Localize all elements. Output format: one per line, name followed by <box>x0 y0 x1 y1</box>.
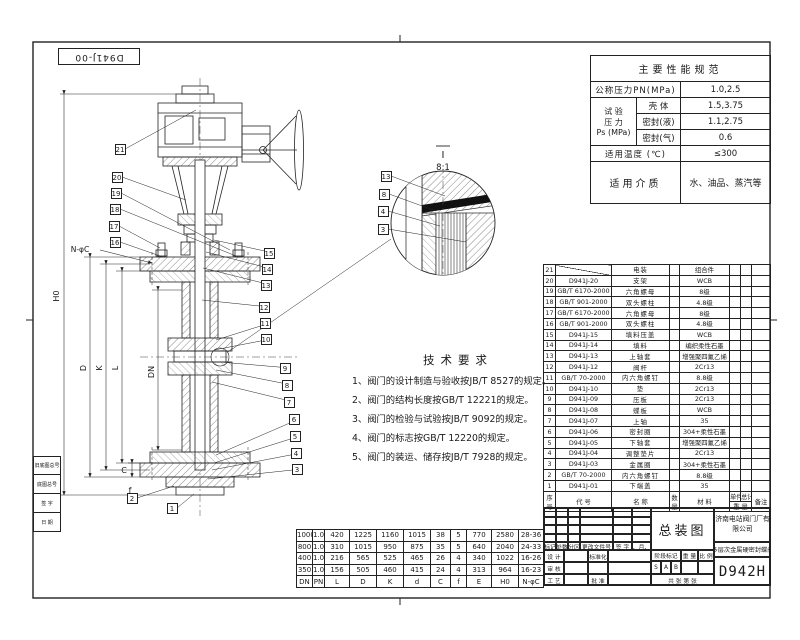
part-remark <box>752 351 771 362</box>
part-no: 16 <box>544 318 556 329</box>
parts-list-table: 21电装组合件20D941J-20支架WCB19GB/T 6170-2000六角… <box>543 264 771 492</box>
part-remark <box>752 448 771 459</box>
spec-title: 主要性能规范 <box>591 56 771 82</box>
parts-list-row: 18GB/T 901-2000双头螺柱4.8级 <box>544 297 771 308</box>
part-unit-weight <box>730 426 741 437</box>
part-name: 蝶板 <box>612 405 670 416</box>
dim-value: 2580 <box>492 530 519 542</box>
part-balloon: 16 <box>110 237 121 248</box>
dim-table-header-row: DNPNLDKdCfEH0N-φC <box>297 576 544 588</box>
parts-list-row: 20D941J-20支架WCB <box>544 275 771 286</box>
part-name: 下轴套 <box>612 437 670 448</box>
test-row-seal-liquid-label: 密封(液) <box>637 114 681 130</box>
part-name: 压板 <box>612 394 670 405</box>
tb-sign: 签 字 <box>613 542 632 550</box>
part-unit-weight <box>730 416 741 427</box>
dim-value: 216 <box>325 553 350 565</box>
stage-mark-b: B <box>671 561 681 574</box>
part-code <box>556 265 612 276</box>
dim-value: 640 <box>467 541 492 553</box>
part-material: WCB <box>680 275 730 286</box>
part-no: 20 <box>544 275 556 286</box>
dim-table-row: 3501.015650546041524431396416-23 <box>297 564 544 576</box>
part-balloon: 2 <box>127 493 138 504</box>
dim-h0: H0 <box>52 290 61 301</box>
part-material: 35 <box>680 416 730 427</box>
part-material: 增强聚四氟乙烯 <box>680 437 730 448</box>
part-unit-weight <box>730 480 741 491</box>
part-material: WCB <box>680 329 730 340</box>
part-qty <box>670 329 680 340</box>
tb-weight: 重 量 <box>681 550 698 561</box>
part-balloon: 13 <box>261 280 272 291</box>
parts-list-row: 16GB/T 901-2000双头螺柱4.8级 <box>544 318 771 329</box>
part-total-weight <box>741 340 752 351</box>
dim-header: f <box>451 576 467 588</box>
dim-value: 964 <box>492 564 519 576</box>
part-material: 编织柔性石墨 <box>680 340 730 351</box>
part-remark <box>752 308 771 319</box>
dim-k: K <box>95 365 104 371</box>
part-qty <box>670 383 680 394</box>
part-no: 8 <box>544 405 556 416</box>
part-code: GB/T 6170-2000 <box>556 308 612 319</box>
part-no: 4 <box>544 448 556 459</box>
part-name: 上轴 <box>612 416 670 427</box>
parts-list-row: 5D941J-05下轴套增强聚四氟乙烯 <box>544 437 771 448</box>
part-name: 双头螺柱 <box>612 297 670 308</box>
part-qty <box>670 318 680 329</box>
dimension-labels: H0 D K L DN C f N-φC <box>52 245 156 495</box>
part-remark <box>752 459 771 470</box>
tech-requirement-item: 4、阀门的标志按GB/T 12220的规定。 <box>352 429 564 448</box>
parts-list-row: 6D941J-06密封圈304+柔性石墨 <box>544 426 771 437</box>
part-balloon: 3 <box>292 464 303 475</box>
part-unit-weight <box>730 405 741 416</box>
part-no: 21 <box>544 265 556 276</box>
part-qty <box>670 426 680 437</box>
tb-zone: 分区 <box>568 542 580 550</box>
part-material: 2Cr13 <box>680 362 730 373</box>
dim-value: 16-23 <box>519 564 544 576</box>
part-total-weight <box>741 372 752 383</box>
dim-dn: DN <box>147 366 156 378</box>
part-balloon: 5 <box>290 431 301 442</box>
part-total-weight <box>741 383 752 394</box>
part-balloon: 6 <box>289 414 300 425</box>
dim-value: 1022 <box>492 553 519 565</box>
part-no: 2 <box>544 470 556 481</box>
part-balloon: 3 <box>378 224 389 235</box>
tech-requirement-item: 3、阀门的检验与试验按JB/T 9092的规定。 <box>352 410 564 429</box>
technical-requirements-title: 技术要求 <box>352 352 564 368</box>
detail-scale: 8:1 <box>436 163 450 173</box>
part-balloon: 8 <box>282 380 293 391</box>
part-remark <box>752 416 771 427</box>
parts-list-row: 15D941J-15填料压盖WCB <box>544 329 771 340</box>
part-unit-weight <box>730 340 741 351</box>
part-name: 双头螺柱 <box>612 318 670 329</box>
part-qty <box>670 340 680 351</box>
part-name: 填料压盖 <box>612 329 670 340</box>
dim-header: E <box>467 576 492 588</box>
part-code: GB/T 901-2000 <box>556 318 612 329</box>
title-block: 标记 处数 分区 更改文件号 签 字 年、月、日 设 计 标准化 审 核 工 艺… <box>543 507 770 585</box>
part-code: D941J-09 <box>556 394 612 405</box>
margin-block: 旧底图总号底图总号签 字日 期 <box>33 456 61 532</box>
nominal-pressure-label: 公称压力PN(MPa) <box>591 82 681 98</box>
tech-requirement-item: 1、阀门的设计制造与验收按JB/T 8527的规定。 <box>352 372 564 391</box>
part-no: 9 <box>544 394 556 405</box>
tb-date: 年、月、日 <box>632 542 651 550</box>
part-balloon: 19 <box>111 188 122 199</box>
part-qty <box>670 308 680 319</box>
part-no: 15 <box>544 329 556 340</box>
part-qty <box>670 297 680 308</box>
part-remark <box>752 437 771 448</box>
part-name: 支架 <box>612 275 670 286</box>
part-code: D941J-03 <box>556 459 612 470</box>
part-no: 18 <box>544 297 556 308</box>
part-code: D941J-20 <box>556 275 612 286</box>
part-name: 内六角螺钉 <box>612 372 670 383</box>
dim-value: 1.0 <box>313 530 325 542</box>
dim-value: 1225 <box>350 530 377 542</box>
part-material: 4.8级 <box>680 318 730 329</box>
part-name: 垫 <box>612 383 670 394</box>
dim-value: 1015 <box>404 530 431 542</box>
part-unit-weight <box>730 394 741 405</box>
part-code: D941J-08 <box>556 405 612 416</box>
part-material: 8级 <box>680 286 730 297</box>
tb-approve: 批 准 <box>588 574 608 586</box>
tb-design: 设 计 <box>544 550 564 562</box>
dim-value: 400 <box>297 553 313 565</box>
part-balloon: 10 <box>261 334 272 345</box>
dim-d: D <box>79 365 88 371</box>
drawing-model-number: D942H <box>714 557 771 586</box>
part-balloon: 15 <box>264 248 275 259</box>
part-material: 2Cr13 <box>680 394 730 405</box>
part-code: D941J-13 <box>556 351 612 362</box>
dim-value: 156 <box>325 564 350 576</box>
dim-value: 800 <box>297 541 313 553</box>
part-material: 组合件 <box>680 265 730 276</box>
tb-sheets: 共 张 第 张 <box>651 574 714 586</box>
drawing-title: 总装图 <box>651 508 714 550</box>
part-remark <box>752 340 771 351</box>
part-balloon: 14 <box>262 264 273 275</box>
part-remark <box>752 480 771 491</box>
part-balloon: 13 <box>381 171 392 182</box>
dim-value: 5 <box>451 541 467 553</box>
margin-block-cell: 日 期 <box>33 513 61 532</box>
dim-value: 420 <box>325 530 350 542</box>
dim-value: 313 <box>467 564 492 576</box>
part-name: 填料 <box>612 340 670 351</box>
part-unit-weight <box>730 437 741 448</box>
parts-list-row: 11GB/T 70-2000内六角螺钉8.8级 <box>544 372 771 383</box>
part-total-weight <box>741 416 752 427</box>
dim-header: PN <box>313 576 325 588</box>
part-balloon: 8 <box>379 189 390 200</box>
dim-value: 1.0 <box>313 564 325 576</box>
dim-value: 415 <box>404 564 431 576</box>
part-balloon: 4 <box>378 206 389 217</box>
dim-header: C <box>431 576 451 588</box>
part-code: GB/T 901-2000 <box>556 297 612 308</box>
part-no: 7 <box>544 416 556 427</box>
part-remark <box>752 362 771 373</box>
tech-requirement-item: 2、阀门的结构长度按GB/T 12221的规定。 <box>352 391 564 410</box>
part-unit-weight <box>730 448 741 459</box>
dim-value: 350 <box>297 564 313 576</box>
part-code: D941J-04 <box>556 448 612 459</box>
part-qty <box>670 416 680 427</box>
part-code: D941J-15 <box>556 329 612 340</box>
part-unit-weight <box>730 329 741 340</box>
part-no: 17 <box>544 308 556 319</box>
part-qty <box>670 480 680 491</box>
part-qty <box>670 459 680 470</box>
part-qty <box>670 286 680 297</box>
part-balloon: 20 <box>112 172 123 183</box>
part-qty <box>670 437 680 448</box>
stage-mark-a: A <box>661 561 671 574</box>
part-name: 阀杆 <box>612 362 670 373</box>
parts-list-row: 14D941J-14填料编织柔性石墨 <box>544 340 771 351</box>
parts-list-row: 3D941J-03金属圈304+柔性石墨 <box>544 459 771 470</box>
dim-value: 2040 <box>492 541 519 553</box>
part-name: 上轴套 <box>612 351 670 362</box>
part-no: 13 <box>544 351 556 362</box>
part-material: 8级 <box>680 308 730 319</box>
drawing-sheet: H0 D K L DN C f N-φC Ⅰ 8:1 <box>0 0 800 640</box>
part-remark <box>752 470 771 481</box>
dim-c: C <box>121 466 127 475</box>
dim-value: 460 <box>377 564 404 576</box>
tb-check: 审 核 <box>544 562 564 574</box>
part-name: 六角螺母 <box>612 286 670 297</box>
part-total-weight <box>741 480 752 491</box>
part-remark <box>752 286 771 297</box>
dim-value: 465 <box>404 553 431 565</box>
test-row-seal-gas-value: 0.6 <box>681 130 771 146</box>
part-balloon: 12 <box>259 302 270 313</box>
part-code: D941J-06 <box>556 426 612 437</box>
dim-header: DN <box>297 576 313 588</box>
part-unit-weight <box>730 351 741 362</box>
dim-value: 310 <box>325 541 350 553</box>
tb-standard: 标准化 <box>588 550 608 562</box>
tb-mark: 标记 <box>544 542 556 550</box>
part-no: 14 <box>544 340 556 351</box>
corner-drawing-number: D941J-00 <box>58 48 140 65</box>
parts-list-row: 12D941J-12阀杆2Cr13 <box>544 362 771 373</box>
part-total-weight <box>741 286 752 297</box>
part-code: GB/T 70-2000 <box>556 372 612 383</box>
part-material: 35 <box>680 480 730 491</box>
part-balloon: 9 <box>280 363 291 374</box>
part-code: D941J-12 <box>556 362 612 373</box>
dim-value: 4 <box>451 553 467 565</box>
part-total-weight <box>741 329 752 340</box>
medium-value: 水、油品、蒸汽等 <box>681 162 771 204</box>
dim-value: 16-26 <box>519 553 544 565</box>
part-unit-weight <box>730 297 741 308</box>
dim-header: d <box>404 576 431 588</box>
performance-spec-table: 主要性能规范 公称压力PN(MPa) 1.0,2.5 试 验 压 力 Ps (M… <box>590 55 771 204</box>
test-row-seal-gas-label: 密封(气) <box>637 130 681 146</box>
parts-list-row: 21电装组合件 <box>544 265 771 276</box>
part-no: 1 <box>544 480 556 491</box>
part-code: D941J-01 <box>556 480 612 491</box>
part-total-weight <box>741 351 752 362</box>
part-unit-weight <box>730 372 741 383</box>
part-total-weight <box>741 448 752 459</box>
part-material: 8.8级 <box>680 470 730 481</box>
detail-label: Ⅰ <box>442 150 445 161</box>
dim-header: H0 <box>492 576 519 588</box>
part-unit-weight <box>730 275 741 286</box>
part-code: D941J-10 <box>556 383 612 394</box>
dim-value: 1.0 <box>313 541 325 553</box>
part-remark <box>752 265 771 276</box>
margin-block-cell: 签 字 <box>33 494 61 513</box>
parts-list-row: 17GB/T 6170-2000六角螺母8级 <box>544 308 771 319</box>
test-pressure-label: 试 验 压 力 Ps (MPa) <box>591 98 637 146</box>
part-balloon: 4 <box>291 448 302 459</box>
dim-l: L <box>111 365 120 370</box>
part-code: D941J-07 <box>556 416 612 427</box>
col-unit: 单件 <box>730 492 741 502</box>
part-remark <box>752 329 771 340</box>
tb-change-no: 更改文件号 <box>580 542 613 550</box>
bolt-hole-callout: N-φC <box>71 245 90 254</box>
parts-list-row: 9D941J-09压板2Cr13 <box>544 394 771 405</box>
part-code: D941J-14 <box>556 340 612 351</box>
parts-list-row: 13D941J-13上轴套增强聚四氟乙烯 <box>544 351 771 362</box>
part-name: 调整垫片 <box>612 448 670 459</box>
part-total-weight <box>741 362 752 373</box>
parts-list-row: 10D941J-10垫2Cr13 <box>544 383 771 394</box>
margin-block-cell: 旧底图总号 <box>33 456 61 475</box>
test-row-shell-label: 壳 体 <box>637 98 681 114</box>
dim-value: 5 <box>451 530 467 542</box>
product-name: 多层次金属硬密封蝶阀 <box>714 542 771 557</box>
part-remark <box>752 297 771 308</box>
dim-table-row: 4001.0216565525465264340102216-26 <box>297 553 544 565</box>
company-name: 济南电站阀门厂有限公司 <box>714 508 771 542</box>
test-row-seal-liquid-value: 1.1,2.75 <box>681 114 771 130</box>
tb-craft: 工 艺 <box>544 574 564 586</box>
part-qty <box>670 372 680 383</box>
margin-block-cell: 底图总号 <box>33 475 61 494</box>
dim-value: 340 <box>467 553 492 565</box>
dim-value: 35 <box>431 541 451 553</box>
part-material: 4.8级 <box>680 297 730 308</box>
dim-value: 1.0 <box>313 553 325 565</box>
part-name: 内六角螺钉 <box>612 470 670 481</box>
part-no: 12 <box>544 362 556 373</box>
part-balloon: 1 <box>167 503 178 514</box>
part-total-weight <box>741 437 752 448</box>
part-total-weight <box>741 297 752 308</box>
tb-stage: 阶段标记 <box>651 550 681 561</box>
parts-list-row: 8D941J-08蝶板WCB <box>544 405 771 416</box>
dim-value: 1160 <box>377 530 404 542</box>
dim-value: 950 <box>377 541 404 553</box>
temp-label: 适用温度 (℃) <box>591 146 681 162</box>
part-remark <box>752 275 771 286</box>
medium-label: 适用介质 <box>591 162 681 204</box>
part-unit-weight <box>730 286 741 297</box>
part-qty <box>670 275 680 286</box>
part-code: GB/T 6170-2000 <box>556 286 612 297</box>
part-remark <box>752 318 771 329</box>
part-remark <box>752 394 771 405</box>
part-remark <box>752 405 771 416</box>
part-name: 下端盖 <box>612 480 670 491</box>
part-unit-weight <box>730 459 741 470</box>
dim-value: 26 <box>431 553 451 565</box>
test-row-shell-value: 1.5,3.75 <box>681 98 771 114</box>
part-no: 6 <box>544 426 556 437</box>
dim-value: 38 <box>431 530 451 542</box>
temp-value: ≤300 <box>681 146 771 162</box>
part-balloon: 7 <box>284 397 295 408</box>
part-code: D941J-05 <box>556 437 612 448</box>
parts-list-row: 1D941J-01下端盖35 <box>544 480 771 491</box>
part-unit-weight <box>730 308 741 319</box>
part-balloon: 17 <box>109 221 120 232</box>
part-qty <box>670 394 680 405</box>
part-name: 电装 <box>612 265 670 276</box>
part-unit-weight <box>730 383 741 394</box>
part-unit-weight <box>730 362 741 373</box>
tb-scale: 比 例 <box>698 550 714 561</box>
part-remark <box>752 426 771 437</box>
part-remark <box>752 383 771 394</box>
stage-mark-s: S <box>651 561 661 574</box>
part-qty <box>670 362 680 373</box>
part-material: 增强聚四氟乙烯 <box>680 351 730 362</box>
nominal-pressure-value: 1.0,2.5 <box>681 82 771 98</box>
dim-table-row: 8001.03101015950875355640204024-33 <box>297 541 544 553</box>
part-balloon: 18 <box>110 204 121 215</box>
dim-value: 24 <box>431 564 451 576</box>
dim-value: 565 <box>350 553 377 565</box>
part-no: 5 <box>544 437 556 448</box>
part-total-weight <box>741 470 752 481</box>
parts-list-row: 7D941J-07上轴35 <box>544 416 771 427</box>
part-total-weight <box>741 426 752 437</box>
part-total-weight <box>741 275 752 286</box>
part-total-weight <box>741 318 752 329</box>
parts-list-row: 4D941J-04调整垫片2Cr13 <box>544 448 771 459</box>
part-qty <box>670 470 680 481</box>
dim-header: K <box>377 576 404 588</box>
dim-value: 1000 <box>297 530 313 542</box>
part-total-weight <box>741 405 752 416</box>
part-material: 2Cr13 <box>680 448 730 459</box>
part-unit-weight <box>730 318 741 329</box>
part-name: 密封圈 <box>612 426 670 437</box>
part-material: 8.8级 <box>680 372 730 383</box>
dim-value: 525 <box>377 553 404 565</box>
part-total-weight <box>741 308 752 319</box>
col-total: 总计 <box>741 492 752 502</box>
